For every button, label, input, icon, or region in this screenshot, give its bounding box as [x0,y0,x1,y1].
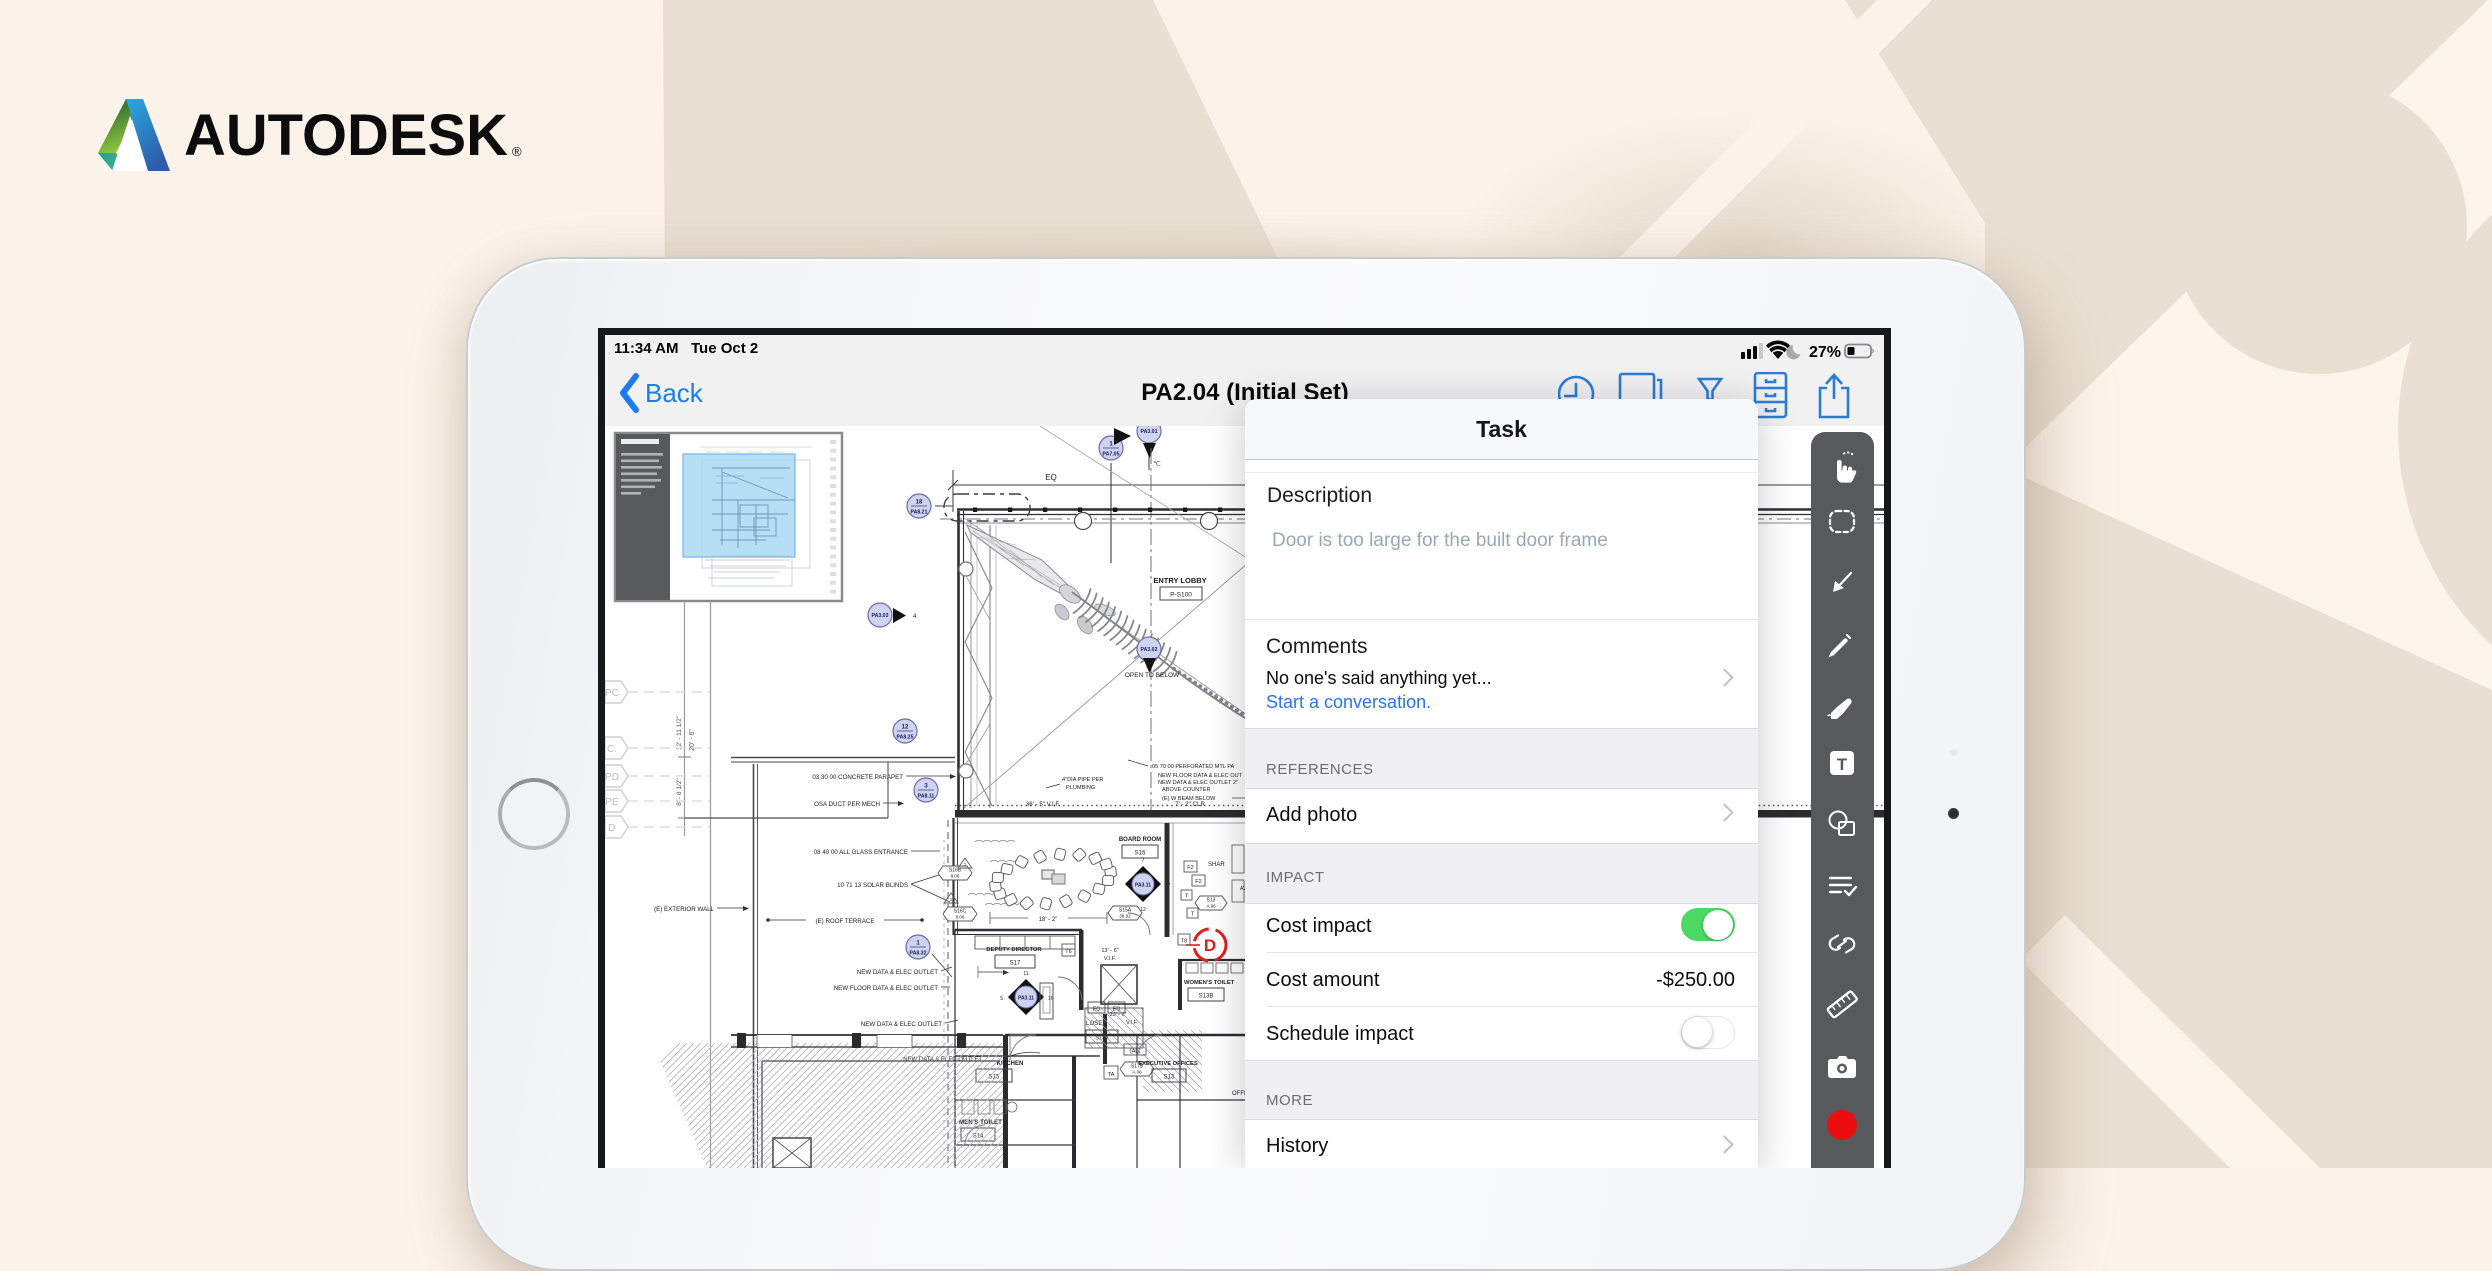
svg-text:PA8.32: PA8.32 [910,951,927,957]
svg-text:PLUMBING: PLUMBING [1066,785,1095,791]
svg-text:18' - 2": 18' - 2" [1039,917,1058,923]
svg-text:NEW DATA & ELEC OUTLET 2": NEW DATA & ELEC OUTLET 2" [1158,780,1238,786]
svg-text:AUTODESK: AUTODESK [184,103,508,168]
svg-text:PA3.11: PA3.11 [1135,883,1151,889]
svg-text:C.: C. [607,744,617,755]
svg-text:KITCHEN: KITCHEN [997,1061,1024,1067]
svg-text:EXECUTIVE OFFICES: EXECUTIVE OFFICES [1138,1061,1198,1067]
svg-text:T8: T8 [1181,939,1187,945]
svg-text:PA8.25: PA8.25 [897,735,914,741]
svg-text:11: 11 [1023,971,1028,977]
svg-text:S17: S17 [1010,961,1021,967]
svg-text:P-S100: P-S100 [1170,592,1192,599]
svg-text:OPEN TO BELOW: OPEN TO BELOW [1125,672,1180,679]
svg-text:S13: S13 [1164,1075,1175,1081]
svg-text:03 30 00 CONCRETE PARAPET: 03 30 00 CONCRETE PARAPET [812,774,903,781]
svg-text:®: ® [512,144,522,159]
svg-text:8.06: 8.06 [956,915,965,920]
svg-text:PA7.05: PA7.05 [1103,452,1120,458]
svg-text:5: 5 [1000,996,1003,1002]
svg-text:4"DIA PIPE PER: 4"DIA PIPE PER [1062,777,1103,783]
svg-text:SHAR: SHAR [1208,862,1225,868]
svg-text:18: 18 [916,500,923,506]
svg-text:WOMEN'S TOILET: WOMEN'S TOILET [1184,980,1235,986]
svg-text:A.96: A.96 [1206,904,1216,909]
svg-text:PA8.21: PA8.21 [911,510,928,516]
svg-text:(E) EXTERIOR WALL: (E) EXTERIOR WALL [654,906,714,913]
svg-text:7' - 2" CLR: 7' - 2" CLR [1175,801,1205,808]
svg-text:12: 12 [902,725,909,731]
svg-text:27%: 27% [1809,344,1841,361]
svg-text:PE: PE [605,797,619,808]
svg-text:PC: PC [605,688,619,699]
svg-text:S16: S16 [1135,851,1146,857]
svg-text:Back: Back [645,378,704,408]
svg-text:T6: T6 [1065,949,1071,955]
svg-text:F2: F2 [1195,879,1201,885]
svg-text:08 40 00 ALL GLASS ENTRANCE: 08 40 00 ALL GLASS ENTRANCE [814,849,908,856]
svg-text:8.06: 8.06 [951,874,960,879]
svg-text:PA8.11: PA8.11 [918,794,935,800]
svg-text:OSA DUCT PER MECH: OSA DUCT PER MECH [814,801,880,808]
svg-text:PA3.03: PA3.03 [872,613,889,619]
svg-text:05 70 00 PERFORATED MTL PA: 05 70 00 PERFORATED MTL PA [1152,764,1235,770]
svg-text:DEPUTY DIRECTOR: DEPUTY DIRECTOR [986,947,1042,953]
svg-text:13' - 6": 13' - 6" [1101,948,1118,954]
svg-text:PA3.02: PA3.02 [1141,647,1158,653]
svg-text:ENTRY LOBBY: ENTRY LOBBY [1153,576,1206,585]
svg-text:12: 12 [1140,907,1146,913]
svg-text:NEW FLOOR DATA & ELEC OUT: NEW FLOOR DATA & ELEC OUT [1158,773,1243,779]
svg-text:NEW FLOOR DATA & ELEC OUTLET: NEW FLOOR DATA & ELEC OUTLET [834,985,939,992]
svg-text:EQ: EQ [1045,473,1057,482]
svg-text:TA: TA [1108,1072,1115,1078]
svg-text:BOARD ROOM: BOARD ROOM [1119,837,1161,843]
svg-text:S13B: S13B [1199,994,1214,1000]
svg-text:(E) ROOF TERRACE: (E) ROOF TERRACE [815,918,874,925]
svg-text:D: D [1204,936,1216,955]
svg-text:V.I.F.: V.I.F. [1104,956,1117,962]
svg-text:NEW DATA & ELEC OUTLET: NEW DATA & ELEC OUTLET [857,969,938,976]
svg-text:7: 7 [1142,858,1145,864]
svg-text:A.06: A.06 [1132,1070,1142,1075]
svg-text:PA3.11: PA3.11 [1018,996,1034,1002]
svg-text:℃: ℃ [1153,461,1161,468]
svg-text:PA3.01: PA3.01 [1141,429,1158,435]
svg-text:ABOVE COUNTER: ABOVE COUNTER [1162,787,1211,793]
svg-text:PD: PD [605,772,619,783]
svg-text:F2: F2 [1187,865,1193,871]
svg-text:10 71 13 SOLAR BLINDS: 10 71 13 SOLAR BLINDS [837,882,908,889]
svg-text:D: D [608,823,615,834]
svg-text:NEW DATA & ELEC OUTLET: NEW DATA & ELEC OUTLET [861,1021,942,1028]
svg-text:36' - 5" V.I.F.: 36' - 5" V.I.F. [1026,801,1061,808]
svg-text:12' - 11 1/2": 12' - 11 1/2" [676,715,683,750]
svg-text:38.92: 38.92 [1119,914,1131,919]
svg-text:T: T [1837,755,1848,774]
